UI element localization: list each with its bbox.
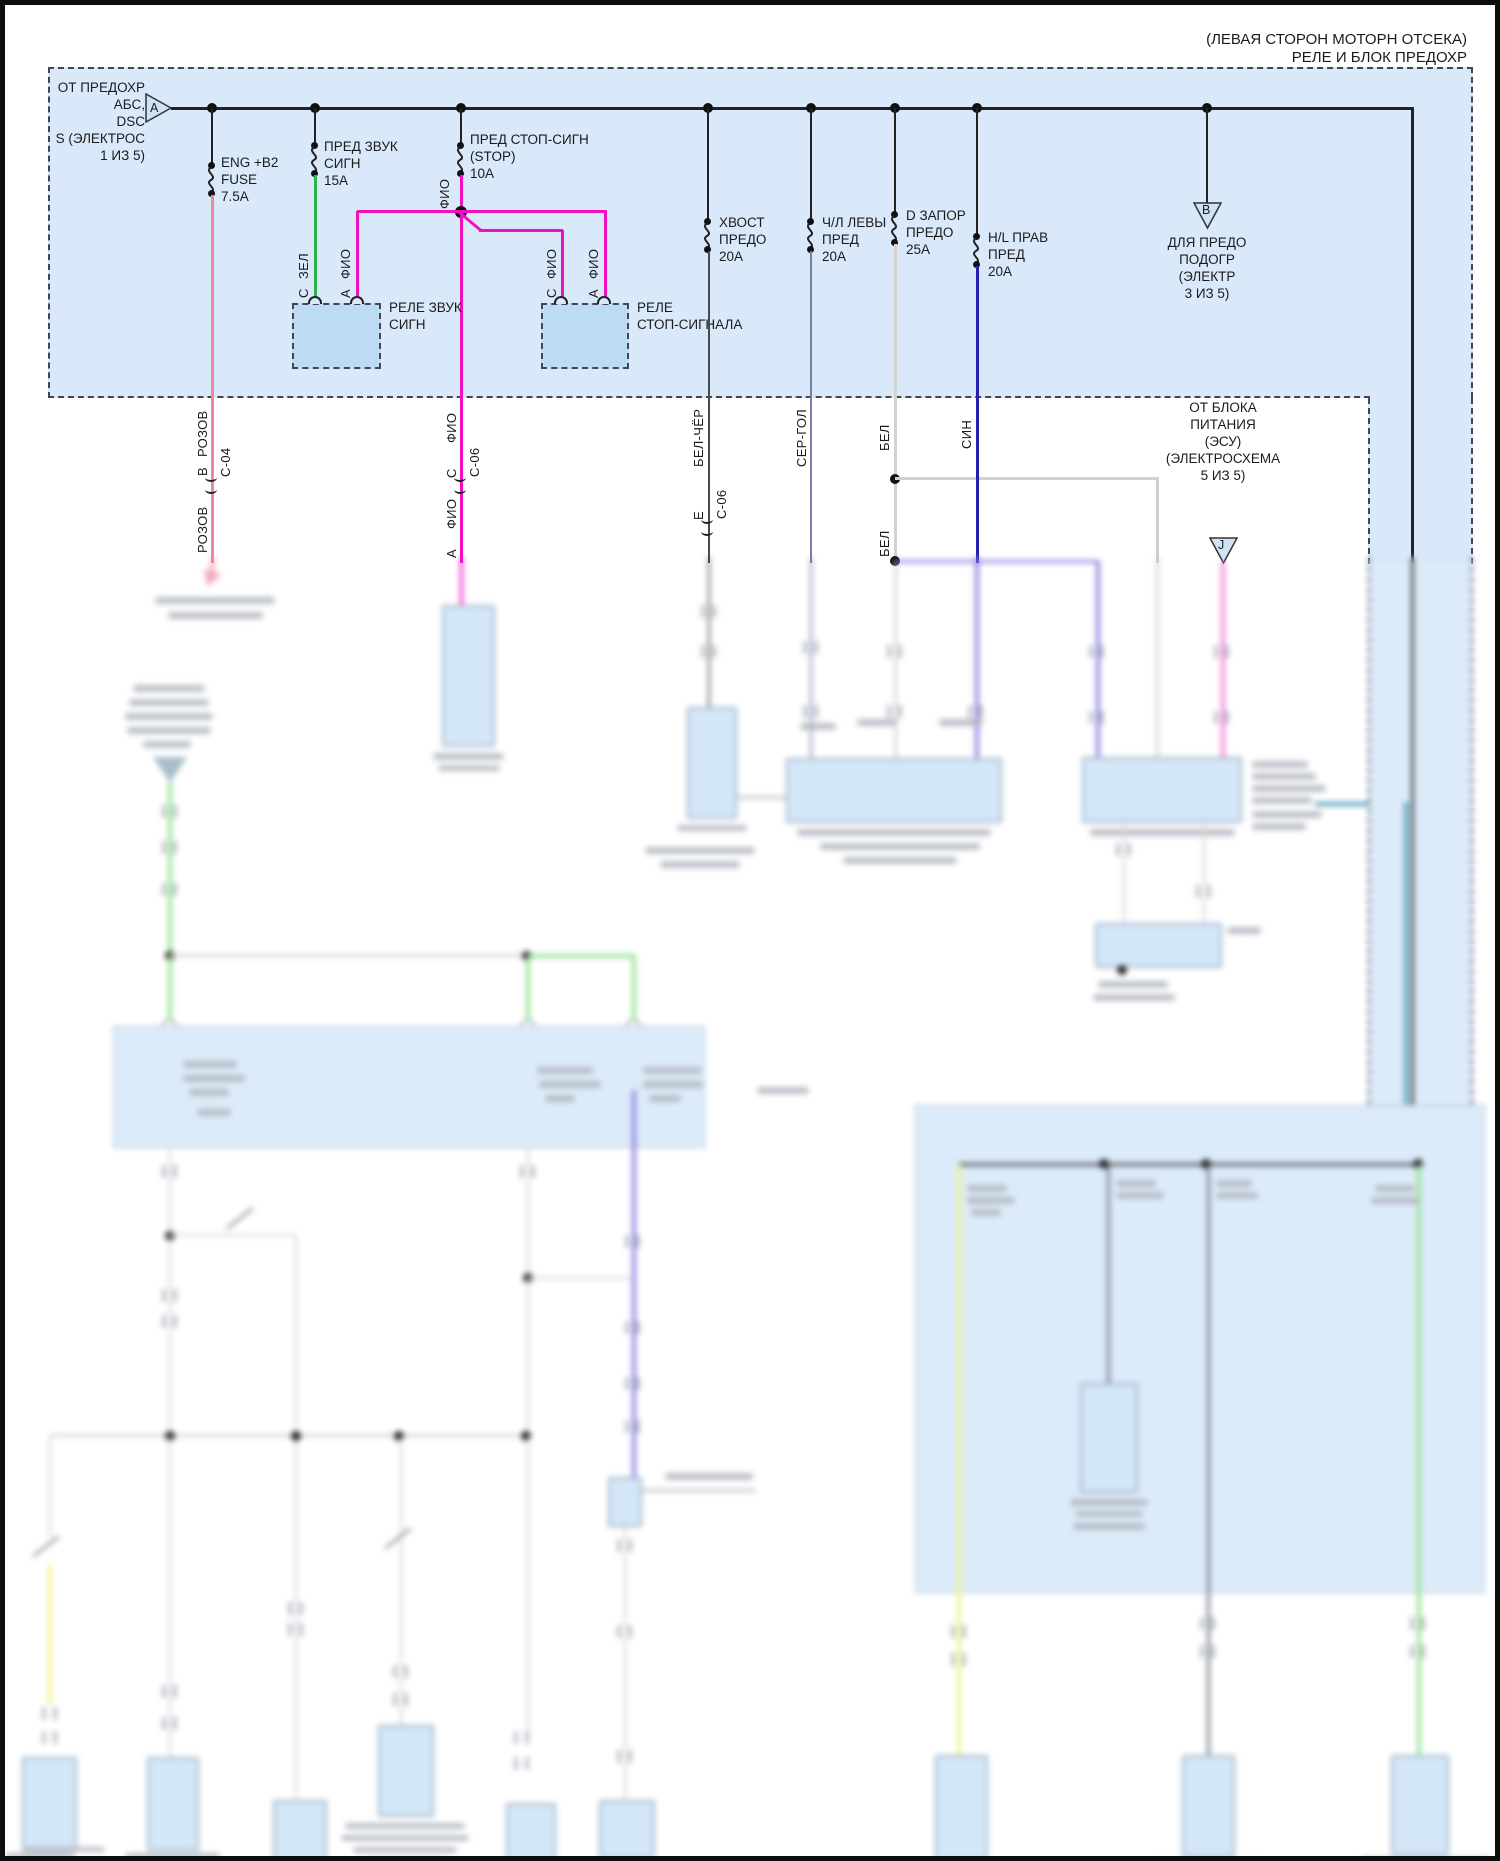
component-box — [22, 1757, 77, 1851]
component-box — [1080, 1383, 1138, 1493]
wire-purple — [895, 560, 1099, 563]
wire-gray — [527, 1437, 529, 1737]
wire-gray — [1107, 1165, 1110, 1383]
blurred-label — [125, 1853, 220, 1859]
connector-tick — [288, 1623, 303, 1636]
junction — [1201, 1159, 1211, 1169]
blurred-label — [1360, 1857, 1490, 1861]
wire-gray — [1123, 823, 1125, 923]
blurred-label — [155, 597, 275, 604]
blurred-label — [645, 847, 755, 854]
component-box — [608, 1477, 642, 1527]
connector-tick — [625, 1235, 640, 1248]
wire-pink — [1221, 561, 1225, 757]
connector-tick — [514, 1731, 529, 1744]
wire-fio — [460, 557, 463, 607]
connector-tick — [1116, 843, 1131, 856]
connector-tick — [625, 1321, 640, 1334]
connector-tick — [887, 645, 902, 658]
connector-tick — [393, 1665, 408, 1678]
connector-tick — [162, 1685, 177, 1698]
fuse-relay-strip-blur — [1368, 557, 1473, 1105]
blurred-label — [1070, 1499, 1148, 1506]
label-line — [642, 1489, 755, 1492]
connector-tick — [1410, 1617, 1425, 1630]
wire-sin-purple — [975, 557, 979, 758]
component-box — [273, 1800, 327, 1861]
component-box — [506, 1803, 556, 1861]
connector-tick — [162, 1289, 177, 1302]
component-box — [1095, 923, 1222, 968]
right-panel — [915, 1105, 1485, 1593]
blurred-label — [967, 1197, 1015, 1204]
connector-tick — [701, 645, 716, 658]
connector-tick — [887, 705, 902, 718]
blurred-label — [23, 1847, 105, 1852]
blurred-label — [438, 765, 500, 771]
component-box — [599, 1800, 655, 1858]
connector-tick — [162, 1315, 177, 1328]
blurred-label — [660, 861, 740, 868]
connector-tick — [162, 1165, 177, 1178]
blurred-label — [125, 713, 213, 720]
blurred-label — [757, 1087, 809, 1094]
wire-gray — [1203, 823, 1205, 923]
blurred-label — [843, 857, 957, 864]
blurred-label — [1252, 797, 1312, 804]
blurred-label — [820, 843, 980, 850]
wire-gray — [169, 1437, 171, 1757]
component-box — [1391, 1755, 1449, 1855]
connector-tick — [968, 705, 983, 718]
junction — [521, 1431, 531, 1441]
junction-box — [1082, 757, 1242, 823]
connector-band — [113, 1026, 705, 1148]
blurred-label — [797, 829, 991, 836]
wire-yellow — [48, 1565, 52, 1705]
component-box — [442, 605, 495, 747]
wire-bel-cher — [708, 557, 710, 707]
blurred-label — [1252, 785, 1326, 792]
wire-bel — [894, 563, 897, 758]
connector-tick — [1089, 645, 1104, 658]
wire-yellow — [957, 1593, 961, 1755]
blurred-label — [1216, 1192, 1258, 1199]
connector-tick — [625, 1377, 640, 1390]
blurred-label — [1252, 773, 1316, 780]
blurred-label — [197, 1109, 231, 1116]
component-box — [378, 1725, 434, 1817]
junction — [394, 1431, 404, 1441]
connector-tick — [1196, 885, 1211, 898]
connector-tick — [803, 705, 818, 718]
junction — [291, 1431, 301, 1441]
blurred-label — [857, 719, 897, 726]
blurred-label — [1252, 811, 1322, 818]
blurred-label — [1090, 829, 1235, 836]
blurred-label — [433, 753, 504, 760]
connector-tick — [514, 1757, 529, 1770]
blurred-label — [5, 1853, 75, 1859]
wire-green — [1417, 1165, 1421, 1593]
blurred-label — [1252, 761, 1308, 768]
connector-tick — [617, 1625, 632, 1638]
connector-tick — [1410, 1645, 1425, 1658]
wiring-diagram-page: (ЛЕВАЯ СТОРОН МОТОРН ОТСЕКА) РЕЛЕ И БЛОК… — [0, 0, 1500, 1861]
junction — [1117, 965, 1127, 975]
connector-tick — [617, 1539, 632, 1552]
blurred-label — [353, 1847, 457, 1853]
switch-icon — [226, 1207, 254, 1230]
wire-end-arrow-icon — [199, 568, 221, 589]
wire-gray — [400, 1437, 402, 1727]
connector-tick — [803, 641, 818, 654]
blurred-label — [1216, 1180, 1252, 1187]
blurred-label — [665, 1473, 753, 1480]
wire-green — [528, 954, 635, 958]
connector-tick — [625, 1420, 640, 1433]
blurred-label — [345, 1823, 465, 1829]
component-box — [935, 1755, 988, 1861]
blurred-label — [1371, 1197, 1419, 1204]
wire-gray — [1207, 1165, 1210, 1593]
connector-tick — [393, 1693, 408, 1706]
blurred-label — [168, 612, 263, 619]
blurred-label — [189, 1089, 229, 1096]
wire-gray — [49, 1437, 51, 1537]
wire-purple — [1096, 561, 1100, 757]
component-box — [1182, 1755, 1235, 1858]
blurred-label — [129, 699, 209, 706]
blurred-label — [1227, 927, 1261, 934]
blurred-label — [143, 741, 191, 748]
blurred-label — [1116, 1192, 1164, 1199]
connector-tick — [951, 1625, 966, 1638]
connector-tick — [288, 1602, 303, 1615]
blurred-lower-diagram — [5, 5, 1500, 1861]
blurred-label — [1093, 994, 1175, 1001]
blurred-label — [539, 1081, 601, 1088]
blurred-label — [967, 1185, 1007, 1192]
blurred-label — [1375, 1185, 1415, 1192]
blurred-label — [183, 1075, 245, 1082]
connector-tick — [1214, 711, 1229, 724]
connector-tick — [1200, 1645, 1215, 1658]
component-box — [687, 707, 737, 819]
connector-tick — [1200, 1617, 1215, 1630]
wire-gray — [50, 1434, 529, 1437]
blurred-label — [800, 723, 836, 730]
connector-tick — [162, 1717, 177, 1730]
wire-gray — [169, 1148, 171, 1238]
connector-tick — [162, 805, 177, 818]
wire-gray — [528, 1277, 634, 1279]
wire-gray — [170, 954, 528, 957]
wire-gray — [295, 1235, 297, 1800]
wire-gray — [737, 796, 786, 799]
blurred-label — [939, 719, 983, 726]
connector-tick — [42, 1731, 57, 1744]
switch-icon — [384, 1527, 412, 1550]
blurred-label — [1116, 1180, 1156, 1187]
blurred-label — [133, 685, 205, 692]
wire-gray — [1156, 557, 1159, 757]
blurred-label — [183, 1061, 237, 1068]
connector-tick — [951, 1653, 966, 1666]
switch-icon — [32, 1535, 60, 1558]
blurred-label — [649, 1095, 681, 1102]
blurred-label — [643, 1067, 701, 1074]
wire-gray — [170, 1234, 296, 1236]
connector-tick — [617, 1750, 632, 1763]
blurred-label — [1098, 981, 1168, 988]
connector-tick — [162, 883, 177, 896]
connector-tick — [701, 605, 716, 618]
connector-tick — [1089, 711, 1104, 724]
connector-tick — [520, 1165, 535, 1178]
blurred-label — [1075, 1511, 1143, 1517]
blurred-label — [643, 1081, 703, 1088]
connector-tick — [1214, 645, 1229, 658]
wire-gray — [527, 1279, 529, 1437]
junction-box — [786, 758, 1002, 823]
blurred-label — [127, 727, 211, 734]
connector-tick — [162, 841, 177, 854]
wire-black — [1411, 557, 1414, 1167]
blurred-label — [1073, 1523, 1145, 1530]
panel-bus — [959, 1163, 1421, 1166]
blurred-label — [1252, 823, 1306, 830]
connector-tick — [42, 1707, 57, 1720]
blurred-label — [545, 1095, 575, 1102]
wire-gray — [169, 1237, 171, 1437]
source-triangle-icon — [153, 757, 187, 783]
component-box — [147, 1757, 199, 1851]
blurred-label — [537, 1067, 593, 1074]
wire-yellow — [957, 1165, 961, 1593]
blurred-label — [677, 825, 747, 831]
blurred-label — [341, 1835, 469, 1841]
blurred-label — [971, 1209, 1001, 1216]
